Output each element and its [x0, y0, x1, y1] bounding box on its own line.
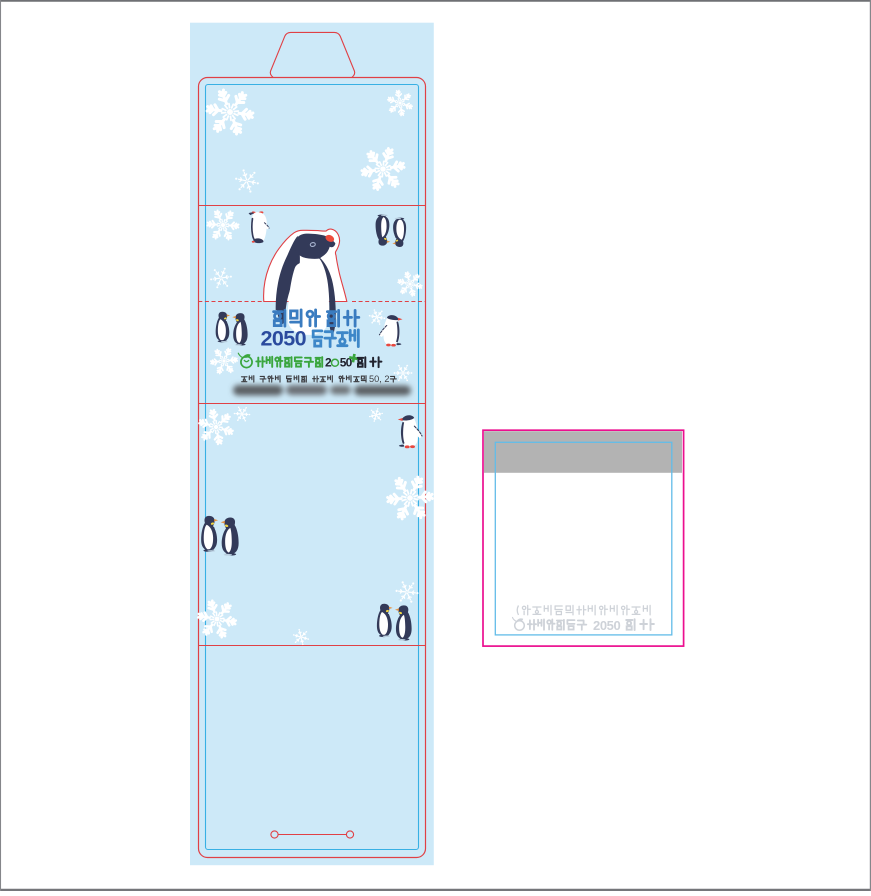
svg-text:50, 2: 50, 2 [369, 374, 389, 384]
svg-text:2050: 2050 [261, 327, 307, 351]
svg-text:2050: 2050 [593, 618, 620, 633]
